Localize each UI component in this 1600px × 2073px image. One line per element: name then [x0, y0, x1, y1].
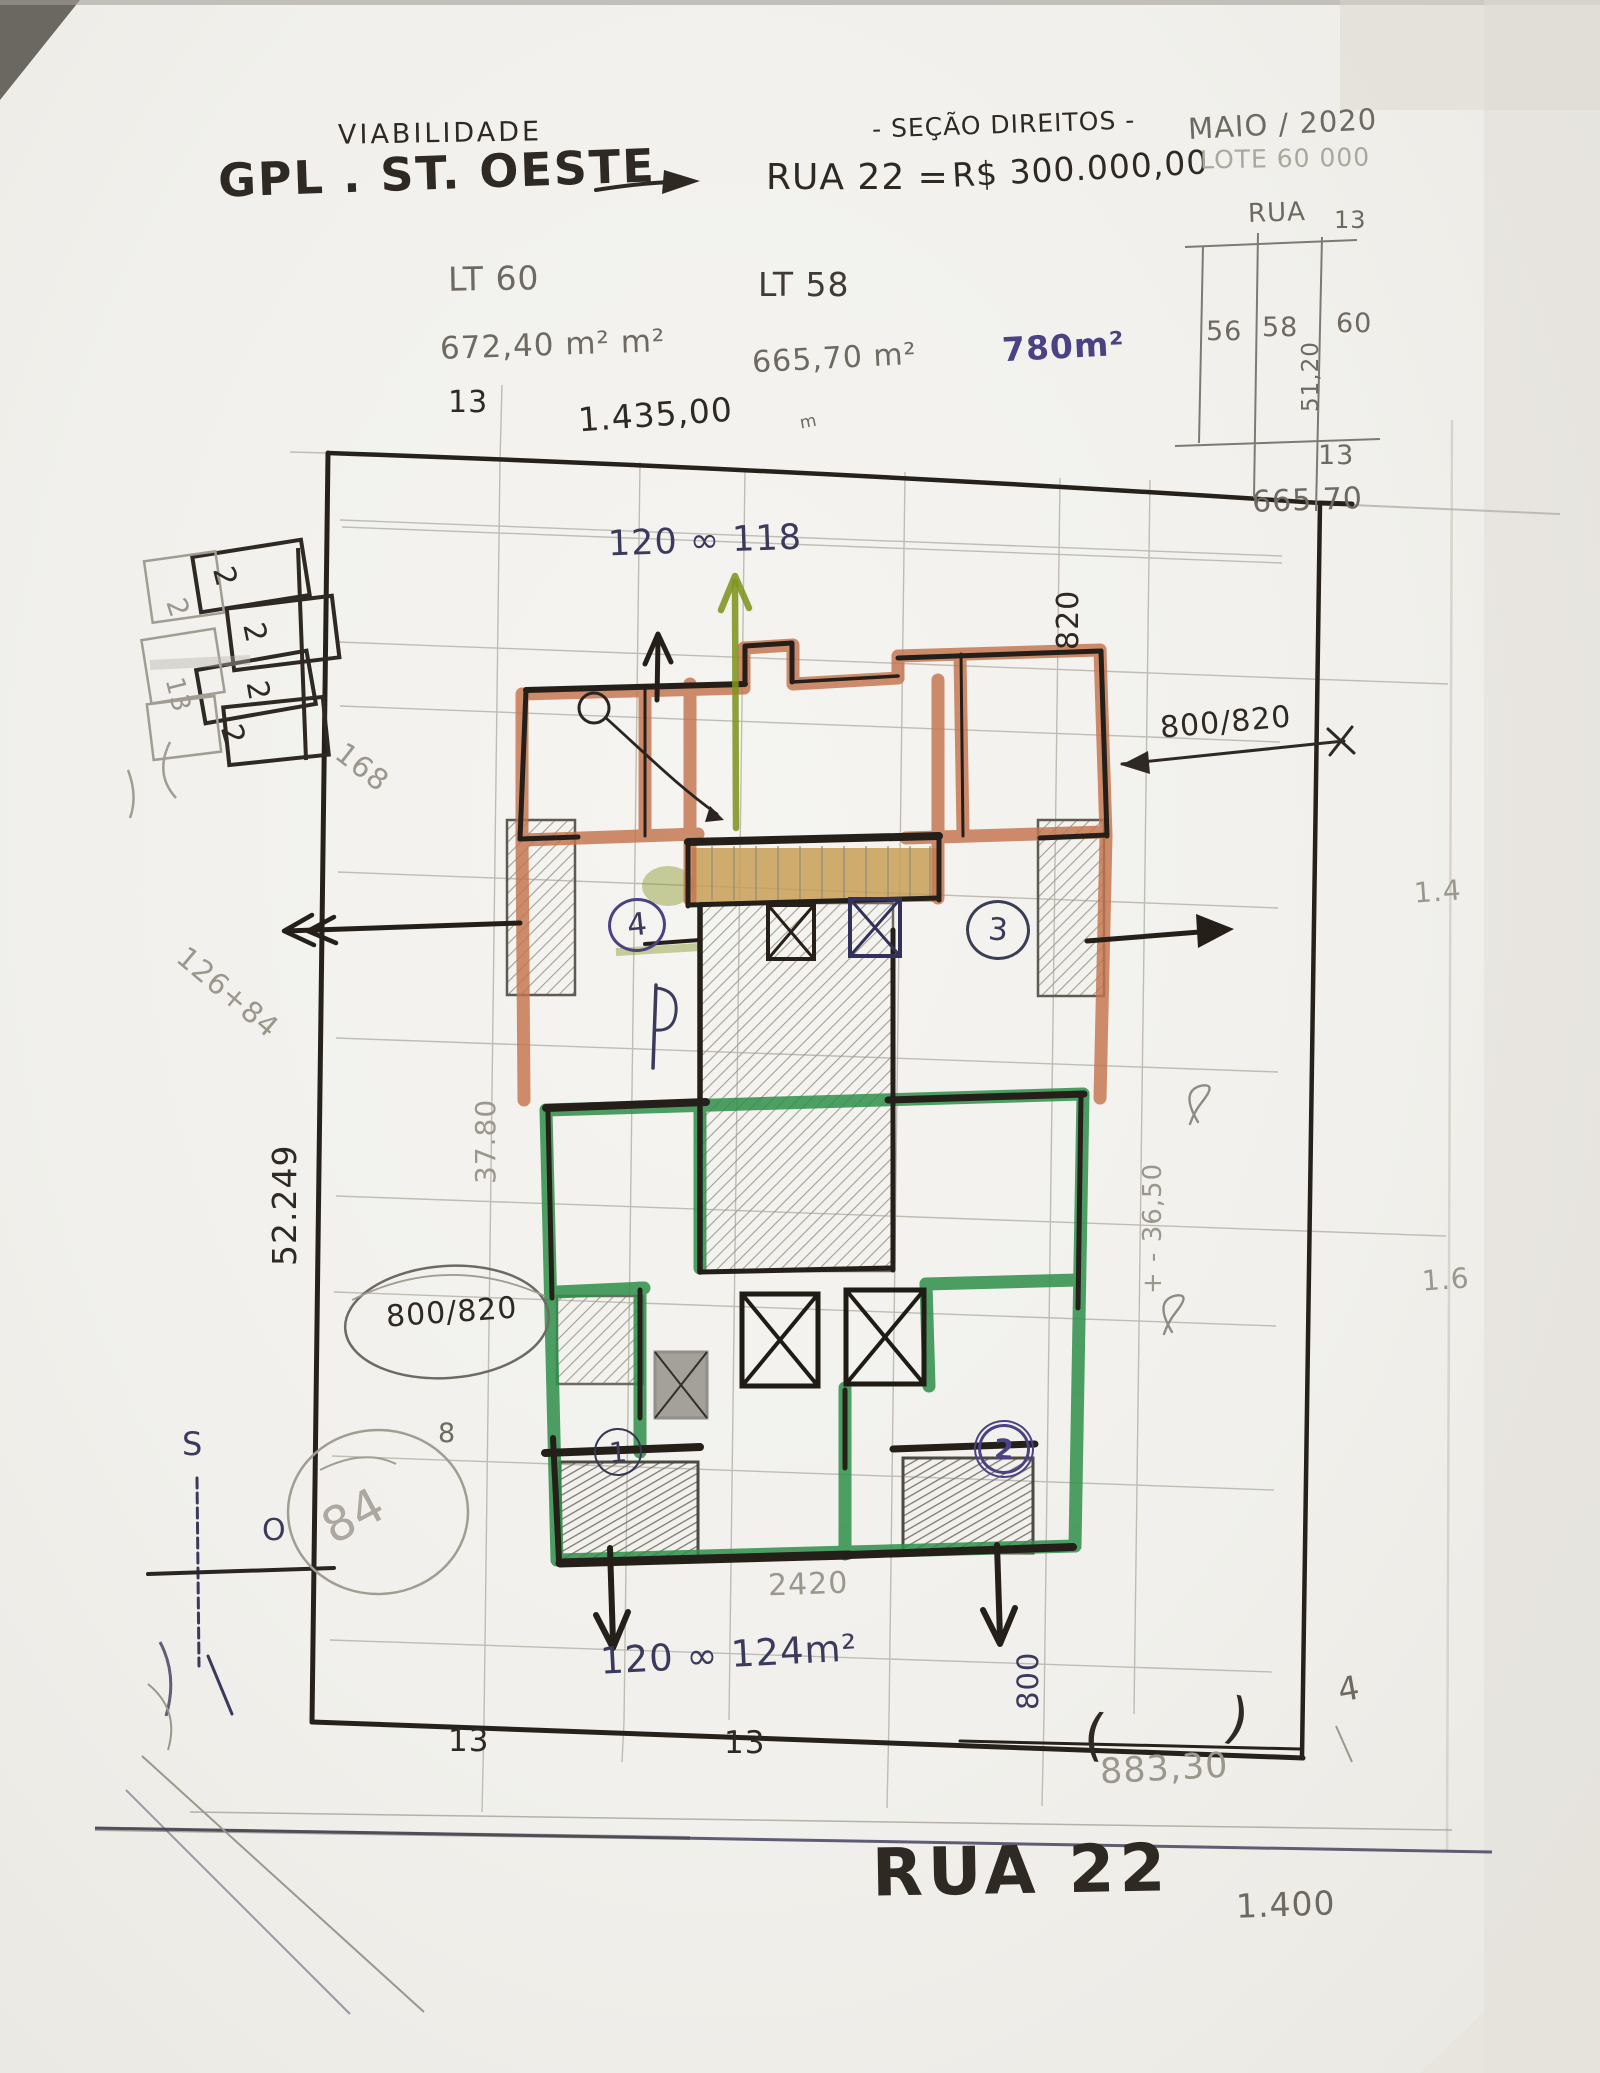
up-arrow	[657, 640, 658, 700]
depth-820: 820	[1054, 590, 1084, 650]
top-length-unit: m	[799, 413, 819, 433]
minimap-street-number: 13	[1334, 208, 1367, 232]
pointer-curve	[606, 718, 717, 814]
edge-1-4: 1.4	[1413, 876, 1462, 907]
sheet-title: GPL . ST. OESTE	[217, 142, 656, 203]
compass-south: S	[182, 1428, 203, 1460]
green-up-arrow	[735, 582, 736, 828]
lt60-area: 672,40 m² m²	[440, 326, 666, 365]
down-arrow-right	[997, 1545, 1000, 1638]
minimap-lot-58: 58	[1262, 314, 1298, 341]
street-bottom-label: RUA 22	[871, 1835, 1170, 1906]
circled-800-820: 800/820	[385, 1293, 518, 1332]
street-top-label: RUA 22 =	[766, 160, 949, 196]
blue-flag-mark	[653, 985, 656, 1068]
down-arrow-left	[610, 1548, 613, 1642]
lt58-area: 665,70 m²	[751, 340, 917, 379]
bottom-13-left: 13	[448, 1726, 489, 1757]
north-arrow-head	[662, 170, 700, 194]
minimap-lot-60: 60	[1336, 310, 1372, 337]
compass-west: O	[262, 1516, 287, 1546]
sketch-sheet: VIABILIDADE GPL . ST. OESTE - SEÇÃO DIRE…	[0, 0, 1600, 2073]
bottom-2420: 2420	[768, 1569, 849, 1602]
pencil-squiggle	[1163, 1295, 1183, 1334]
unit-2-number: 2	[993, 1432, 1014, 1466]
bottom-13-right: 13	[724, 1728, 765, 1759]
minimap-depth: 665 70	[1252, 484, 1364, 518]
minimap-street: RUA	[1248, 199, 1307, 227]
dim-arrow-800-820	[1122, 741, 1344, 764]
proposed-area: 780m²	[1001, 327, 1125, 366]
compass	[148, 1478, 334, 1714]
minimap-lot-56: 56	[1206, 318, 1242, 345]
lot-note: LOTE 60 000	[1200, 145, 1371, 173]
bottom-length: 883,30	[1099, 1749, 1229, 1791]
scale-note: 1.400	[1235, 1886, 1336, 1922]
pencil-squiggle	[1189, 1085, 1209, 1124]
unit-1-number: 1	[608, 1435, 628, 1469]
edge-1-6: 1.6	[1421, 1264, 1470, 1295]
left-52-249: 52.249	[268, 1145, 301, 1266]
lt60-label: LT 60	[448, 261, 540, 296]
level-36-50: + - 36,50	[1140, 1163, 1166, 1294]
units-top: 120 ∞ 118	[607, 521, 802, 563]
doodle-13-pencil: 13	[161, 675, 195, 715]
front-13: 13	[448, 388, 488, 418]
top-length: 1.435,00	[577, 393, 734, 437]
minimap-width: 51,20	[1300, 341, 1323, 412]
street-lines	[95, 1642, 1492, 2014]
width-37-80: 37.80	[472, 1099, 500, 1184]
unit-4-number: 4	[625, 906, 648, 944]
note-8: 8	[438, 1420, 456, 1447]
bottom-800: 800	[1014, 1652, 1043, 1710]
lt58-label: LT 58	[758, 268, 849, 301]
unit-3-number: 3	[987, 911, 1009, 948]
minimap-front: 13	[1318, 442, 1354, 469]
